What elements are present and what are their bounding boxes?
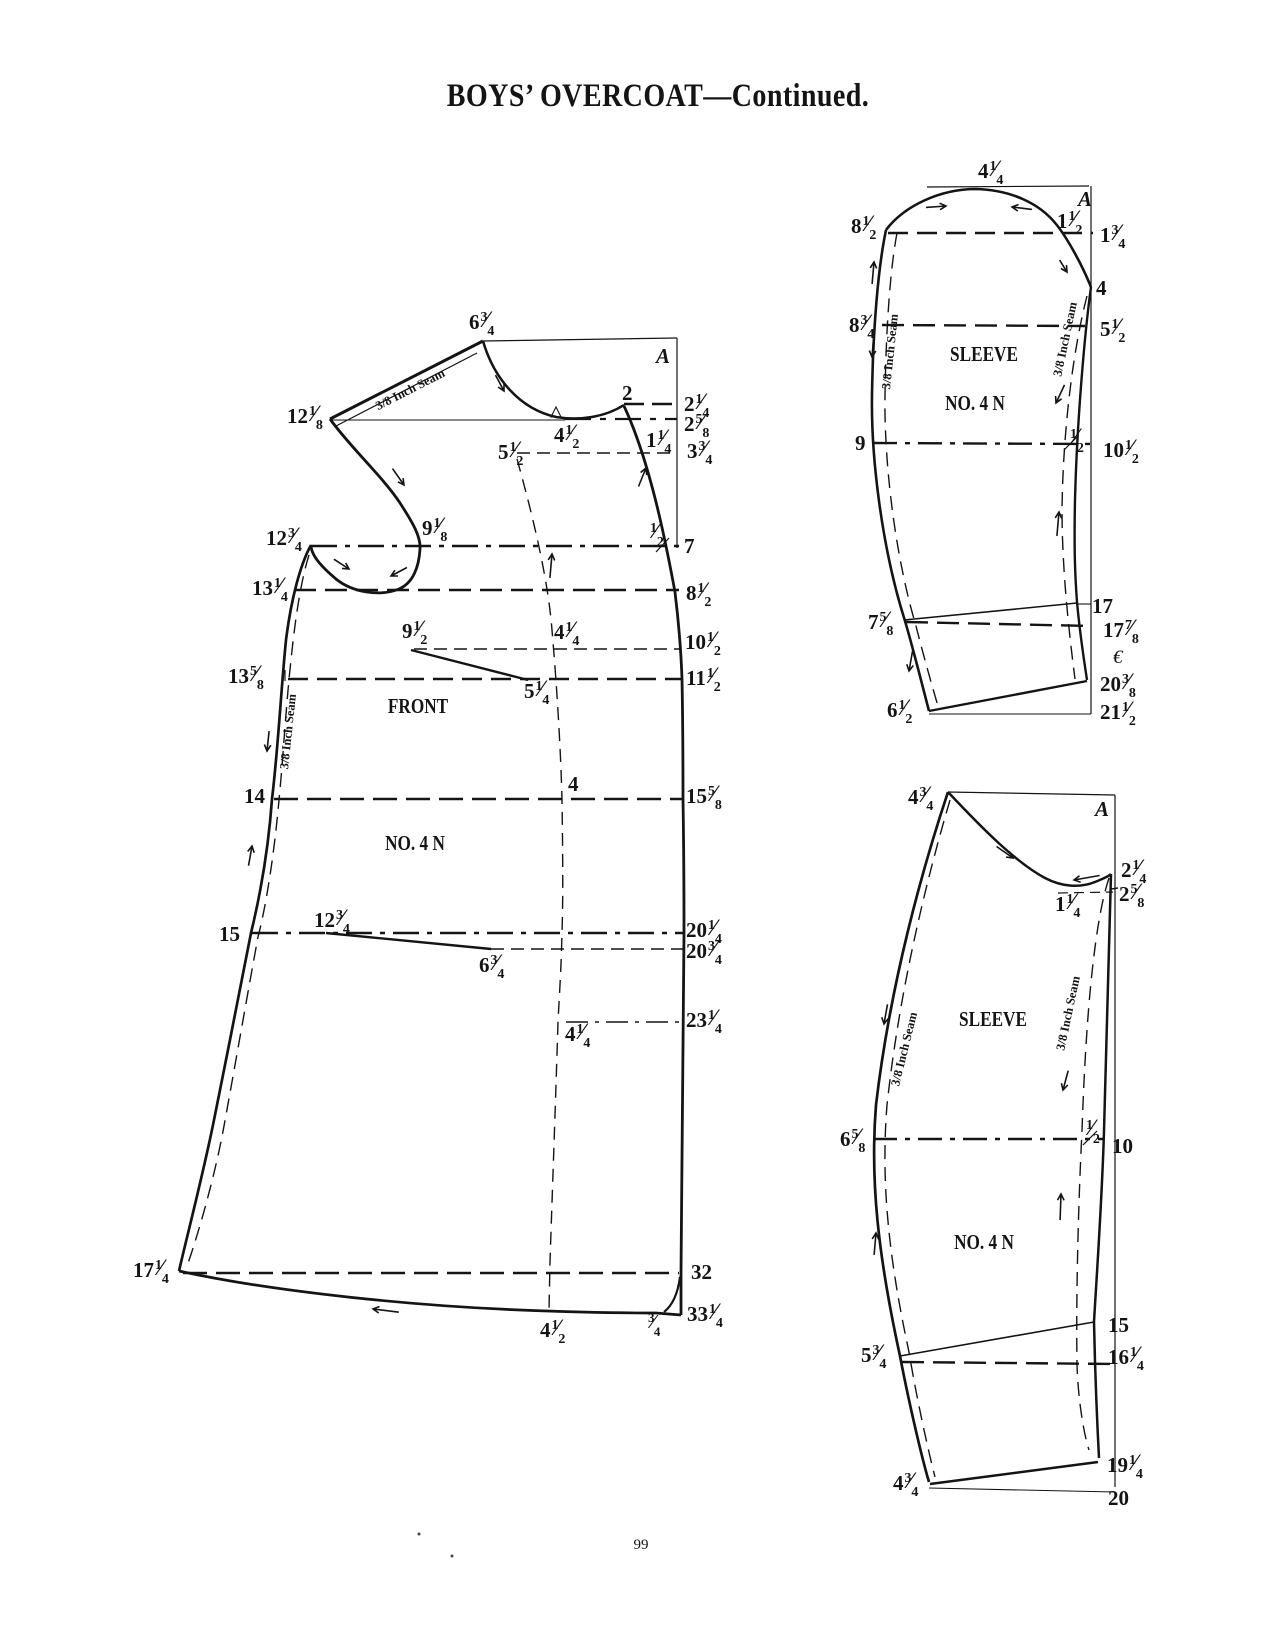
svg-text:17: 17 — [1092, 594, 1113, 618]
svg-text:15: 15 — [219, 922, 240, 946]
svg-text:SLEEVE: SLEEVE — [950, 344, 1018, 367]
svg-text:20: 20 — [1108, 1486, 1129, 1510]
svg-text:€: € — [1113, 647, 1124, 668]
svg-text:NO. 4 N: NO. 4 N — [385, 833, 445, 856]
svg-text:A: A — [654, 344, 670, 368]
svg-text:4: 4 — [1096, 276, 1107, 300]
svg-text:32: 32 — [691, 1260, 712, 1284]
svg-text:A: A — [1093, 797, 1109, 821]
svg-text:SLEEVE: SLEEVE — [959, 1009, 1027, 1032]
svg-text:4: 4 — [568, 772, 579, 796]
svg-text:A: A — [1076, 187, 1092, 211]
svg-text:9: 9 — [855, 431, 866, 455]
svg-text:NO. 4 N: NO. 4 N — [954, 1232, 1014, 1255]
svg-text:14: 14 — [244, 784, 266, 808]
svg-text:10: 10 — [1112, 1134, 1133, 1158]
svg-text:7: 7 — [684, 534, 695, 558]
svg-text:15: 15 — [1108, 1313, 1129, 1337]
svg-text:2: 2 — [622, 381, 633, 405]
svg-text:NO. 4 N: NO. 4 N — [945, 393, 1005, 416]
svg-text:BOYS’ OVERCOAT—Continued.: BOYS’ OVERCOAT—Continued. — [447, 77, 869, 114]
svg-text:FRONT: FRONT — [388, 696, 448, 719]
svg-text:99: 99 — [634, 1537, 649, 1553]
